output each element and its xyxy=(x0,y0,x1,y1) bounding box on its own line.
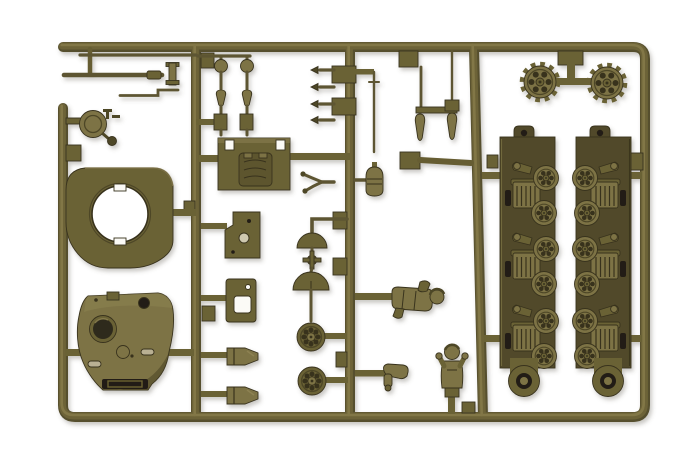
sprue-photo xyxy=(0,0,700,466)
cone-pin xyxy=(311,84,334,91)
gate-block xyxy=(336,352,347,367)
turret-part xyxy=(66,292,194,390)
loader-hatch-hole xyxy=(139,298,150,309)
tow-shackles xyxy=(201,348,258,404)
cone-pin xyxy=(311,101,334,108)
ventilator xyxy=(117,346,130,359)
stowage-pack xyxy=(355,162,383,196)
periscope-column xyxy=(214,56,228,135)
dome-small xyxy=(297,233,327,248)
gate-block xyxy=(630,153,643,170)
cone-pin xyxy=(311,67,334,74)
sprocket-left xyxy=(522,64,558,100)
hatch-fitting xyxy=(103,109,112,112)
gate-block xyxy=(333,258,347,275)
crew-figure-arm xyxy=(355,364,408,391)
gate-block xyxy=(202,306,215,321)
cone-pin xyxy=(311,117,334,124)
tow-fork xyxy=(300,171,334,193)
hatch-knob xyxy=(108,137,117,146)
sprocket-right xyxy=(589,65,625,101)
grab-handle xyxy=(141,349,154,355)
periscope-column xyxy=(240,56,254,135)
gate-block xyxy=(487,155,498,168)
gate-block xyxy=(66,145,81,161)
hub-cap xyxy=(303,251,321,269)
turret-ring-part xyxy=(66,168,196,268)
crew-figure-reclining xyxy=(355,281,444,318)
sprocket-wheels xyxy=(522,51,625,101)
gate-block xyxy=(462,402,475,413)
idler-mount-lug xyxy=(509,358,540,397)
grab-handle xyxy=(88,361,101,367)
gate-block xyxy=(399,51,418,67)
panel-with-holes xyxy=(201,212,260,258)
photo-canvas xyxy=(0,0,700,466)
gate-block xyxy=(400,152,420,169)
idler-mount-lug xyxy=(593,358,624,397)
hatch-disc-part xyxy=(66,109,120,146)
gun-barrel-part xyxy=(64,49,196,96)
fittings-cluster xyxy=(415,51,459,141)
ring-notch xyxy=(114,184,126,191)
ring-notch xyxy=(114,238,126,245)
